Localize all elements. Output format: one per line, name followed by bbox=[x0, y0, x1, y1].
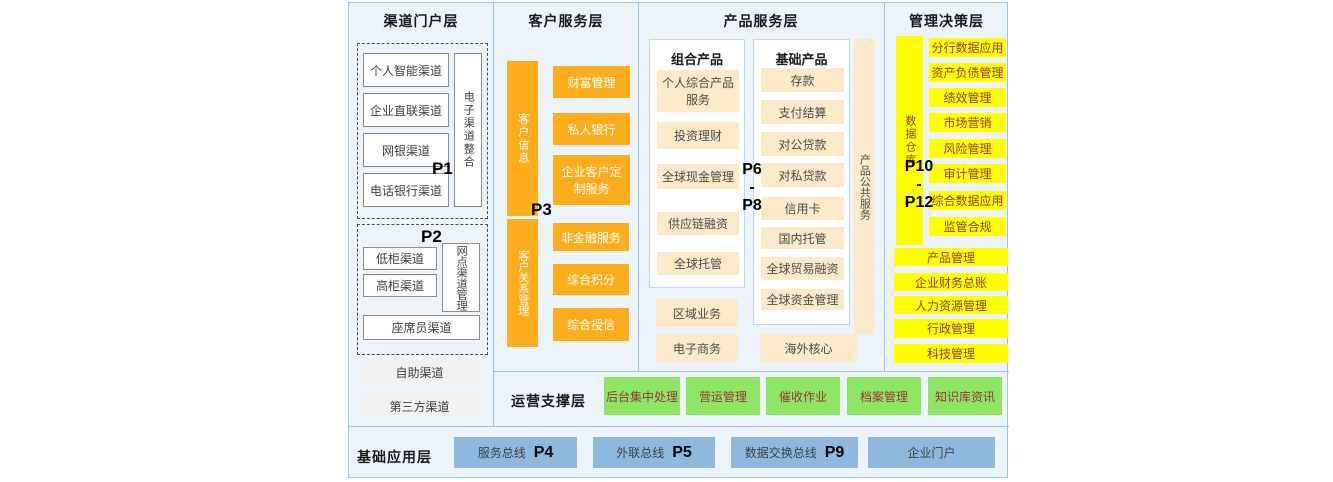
product-node: 存款 bbox=[761, 68, 844, 92]
management-node: 科技管理 bbox=[894, 344, 1008, 363]
management-node: 监管合规 bbox=[929, 217, 1006, 236]
diagram-panel: 渠道门户层 个人智能渠道 企业直联渠道 网银渠道 电话银行渠道 电子渠道整合 P… bbox=[348, 2, 1008, 478]
management-node: 绩效管理 bbox=[929, 88, 1006, 107]
management-node: 审计管理 bbox=[929, 164, 1006, 183]
product-node: 支付结算 bbox=[761, 100, 844, 124]
customer-node: 综合积分 bbox=[553, 264, 629, 295]
p4-label: P4 bbox=[534, 444, 554, 462]
bus-label: 服务总线 bbox=[478, 444, 526, 461]
product-node: 对私贷款 bbox=[761, 163, 844, 187]
customer-node: 综合授信 bbox=[553, 308, 629, 341]
third-party-channel-node: 第三方渠道 bbox=[358, 395, 481, 417]
operations-node: 档案管理 bbox=[847, 377, 921, 415]
product-node: 全球资金管理 bbox=[761, 289, 844, 310]
management-node: 分行数据应用 bbox=[929, 38, 1006, 57]
e-commerce-node: 电子商务 bbox=[656, 334, 738, 362]
customer-info-node: 客户信息 bbox=[507, 61, 538, 216]
p1-label: P1 bbox=[432, 160, 453, 177]
data-exchange-bus-node: 数据交换总线 P9 bbox=[731, 437, 858, 468]
operations-node: 营运管理 bbox=[686, 377, 760, 415]
product-public-service-node: 产品公共服务 bbox=[854, 39, 874, 334]
customer-service-layer-title: 客户服务层 bbox=[494, 11, 638, 31]
architecture-diagram: 渠道门户层 个人智能渠道 企业直联渠道 网银渠道 电话银行渠道 电子渠道整合 P… bbox=[0, 0, 1333, 482]
management-node: 产品管理 bbox=[894, 248, 1008, 266]
product-node: 对公贷款 bbox=[761, 132, 844, 156]
product-node: 信用卡 bbox=[761, 197, 844, 220]
customer-relationship-mgmt-node: 客户关系管理 bbox=[507, 219, 538, 347]
product-node: 投资理财 bbox=[657, 122, 739, 149]
bus-label: 外联总线 bbox=[616, 444, 664, 461]
p6-label: P6 bbox=[737, 161, 767, 179]
operations-node: 知识库资讯 bbox=[928, 377, 1002, 415]
foundation-application-layer-title: 基础应用层 bbox=[357, 447, 432, 467]
p8-label: P8 bbox=[737, 197, 767, 215]
operations-node: 催收作业 bbox=[766, 377, 840, 415]
p-range-separator: - bbox=[737, 179, 767, 197]
divider-foundation-top bbox=[349, 426, 1009, 427]
p9-label: P9 bbox=[825, 444, 845, 462]
overseas-core-node: 海外核心 bbox=[760, 334, 857, 362]
management-node: 行政管理 bbox=[894, 319, 1008, 338]
p-range-separator: - bbox=[898, 176, 940, 194]
service-bus-node: 服务总线 P4 bbox=[454, 437, 577, 468]
p3-label: P3 bbox=[531, 201, 552, 218]
agent-channel-node: 座席员渠道 bbox=[363, 315, 480, 340]
management-decision-layer-title: 管理决策层 bbox=[884, 11, 1009, 31]
product-node: 全球托管 bbox=[657, 252, 739, 275]
channel-node: 低柜渠道 bbox=[363, 247, 437, 270]
product-node: 国内托管 bbox=[761, 227, 844, 249]
enterprise-portal-node: 企业门户 bbox=[868, 437, 995, 468]
divider-col1 bbox=[493, 3, 494, 426]
p5-label: P5 bbox=[672, 444, 692, 462]
regional-business-node: 区域业务 bbox=[656, 299, 738, 327]
channel-portal-layer-title: 渠道门户层 bbox=[349, 11, 493, 31]
management-node: 市场营销 bbox=[929, 113, 1006, 132]
data-warehouse-node: 数据仓库 bbox=[896, 36, 923, 245]
management-node: 企业财务总账 bbox=[894, 273, 1008, 291]
management-node: 资产负债管理 bbox=[929, 63, 1006, 82]
bus-label: 数据交换总线 bbox=[745, 444, 817, 461]
divider-col2 bbox=[638, 3, 639, 371]
p12-label: P12 bbox=[898, 194, 940, 212]
combo-products-group: 组合产品 个人综合产品服务 投资理财 全球现金管理 供应链融资 全球托管 bbox=[649, 39, 745, 288]
bus-label: 企业门户 bbox=[907, 444, 955, 461]
e-channel-integration-node: 电子渠道整合 bbox=[454, 53, 482, 207]
combo-products-title: 组合产品 bbox=[650, 49, 744, 68]
external-bus-node: 外联总线 P5 bbox=[593, 437, 715, 468]
product-node: 全球贸易融资 bbox=[761, 257, 844, 280]
operations-support-layer-title: 运营支撑层 bbox=[511, 391, 586, 411]
channel-node: 个人智能渠道 bbox=[363, 53, 449, 87]
product-node: 个人综合产品服务 bbox=[657, 70, 739, 112]
divider-ops-top bbox=[493, 371, 1009, 372]
basic-products-group: 基础产品 存款 支付结算 对公贷款 对私贷款 信用卡 国内托管 全球贸易融资 全… bbox=[753, 39, 850, 325]
product-service-layer-title: 产品服务层 bbox=[638, 11, 884, 31]
operations-node: 后台集中处理 bbox=[604, 377, 680, 415]
management-node: 综合数据应用 bbox=[929, 191, 1006, 210]
customer-node: 企业客户定制服务 bbox=[553, 155, 630, 205]
p6-p8-label: P6 - P8 bbox=[737, 161, 767, 215]
customer-node: 财富管理 bbox=[553, 66, 630, 98]
management-node: 风险管理 bbox=[929, 139, 1006, 158]
p2-label: P2 bbox=[421, 228, 442, 245]
p10-label: P10 bbox=[898, 158, 940, 176]
divider-col3 bbox=[884, 3, 885, 371]
branch-channel-mgmt-node: 网点渠道管理 bbox=[442, 243, 480, 312]
basic-products-title: 基础产品 bbox=[754, 49, 849, 68]
channel-node: 企业直联渠道 bbox=[363, 93, 449, 127]
self-service-channel-node: 自助渠道 bbox=[358, 361, 481, 383]
channel-node: 电话银行渠道 bbox=[363, 173, 449, 207]
product-node: 供应链融资 bbox=[657, 212, 739, 235]
channel-node: 高柜渠道 bbox=[363, 274, 437, 297]
p10-p12-label: P10 - P12 bbox=[898, 158, 940, 212]
product-node: 全球现金管理 bbox=[657, 164, 739, 189]
management-node: 人力资源管理 bbox=[894, 296, 1008, 314]
customer-node: 私人银行 bbox=[553, 113, 630, 145]
customer-node: 非金融服务 bbox=[553, 223, 629, 251]
